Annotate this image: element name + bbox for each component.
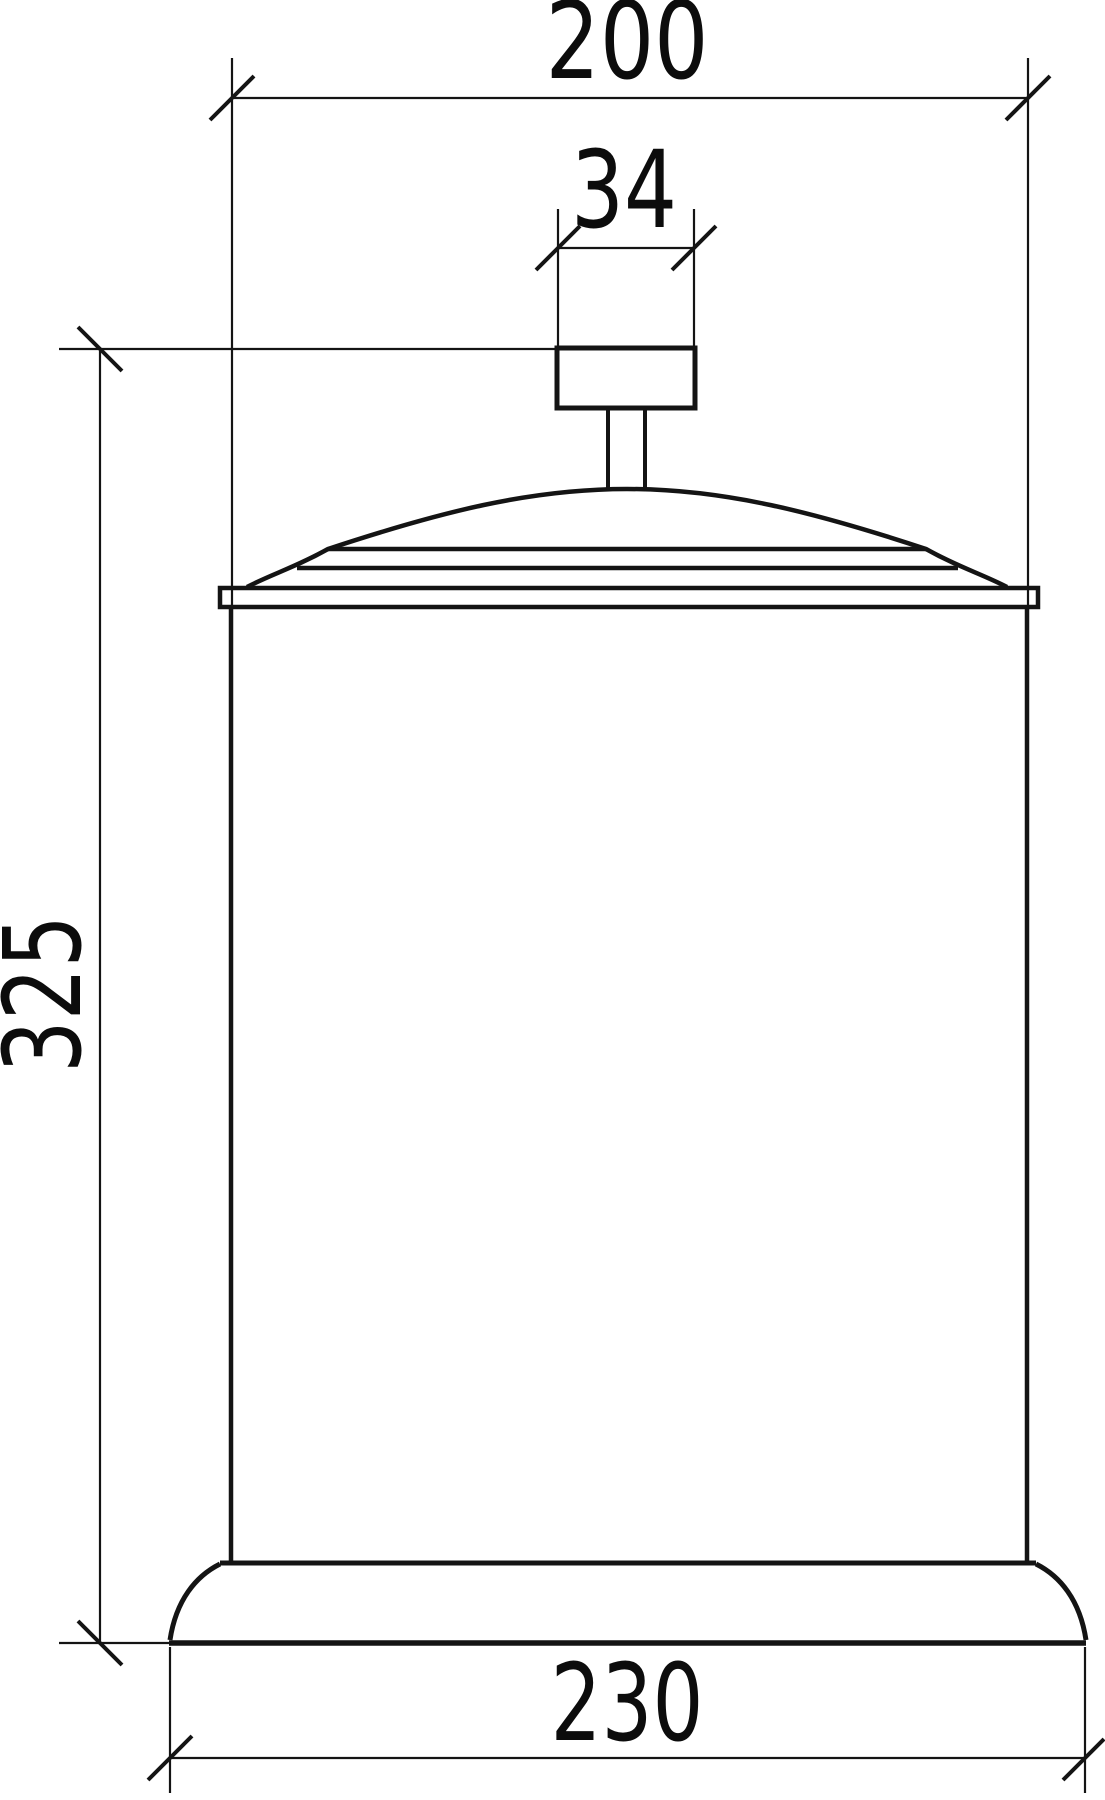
base-flare-right xyxy=(1036,1564,1086,1640)
dimension-overall-height: 325 xyxy=(0,327,558,1665)
oblique-tick xyxy=(1063,1739,1104,1780)
dimension-label-base-diameter: 230 xyxy=(551,1642,704,1766)
lid-rim-plate xyxy=(220,588,1038,607)
lid-dome-silhouette xyxy=(247,489,1007,587)
dimension-label-knob-width: 34 xyxy=(571,129,677,253)
bin-elevation-drawing: 200 34 325 230 xyxy=(0,0,1105,1800)
dimension-label-overall-height: 325 xyxy=(0,915,106,1073)
lid-knob xyxy=(557,348,695,408)
bin-object xyxy=(169,348,1086,1643)
base-flare-left xyxy=(170,1564,220,1640)
dimension-bin-diameter: 200 xyxy=(210,0,1050,607)
dimension-knob-width: 34 xyxy=(536,129,716,348)
dimension-annotations: 200 34 325 230 xyxy=(0,0,1104,1793)
technical-drawing-canvas: 200 34 325 230 xyxy=(0,0,1105,1800)
dimension-label-bin-diameter: 200 xyxy=(546,0,709,104)
dimension-base-diameter: 230 xyxy=(148,1642,1104,1793)
